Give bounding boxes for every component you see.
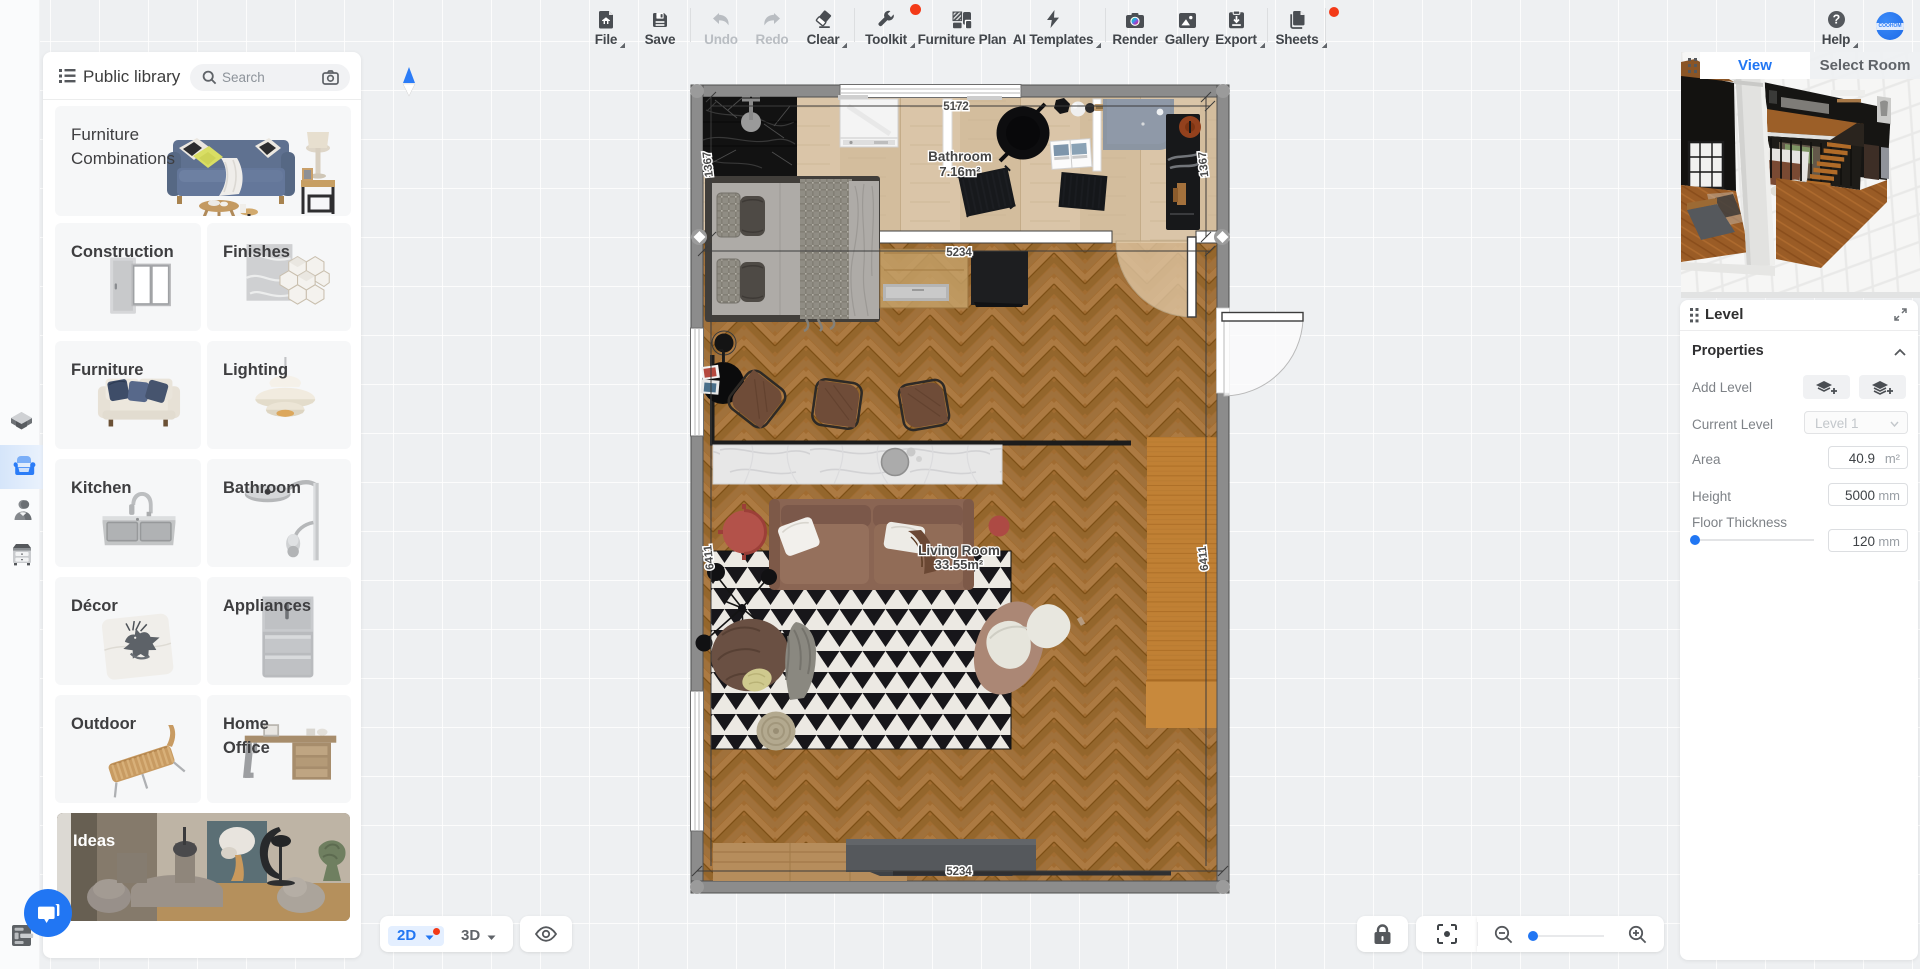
svg-text:5172: 5172 bbox=[943, 101, 969, 113]
svg-text:7.16m²: 7.16m² bbox=[939, 164, 981, 179]
svg-text:33.55m²: 33.55m² bbox=[935, 557, 984, 572]
svg-text:5234: 5234 bbox=[946, 866, 972, 878]
svg-text:5234: 5234 bbox=[946, 247, 972, 259]
svg-text:Living Room: Living Room bbox=[918, 543, 1000, 558]
svg-text:?: ? bbox=[1832, 13, 1840, 27]
svg-text:Bathroom: Bathroom bbox=[928, 149, 992, 164]
